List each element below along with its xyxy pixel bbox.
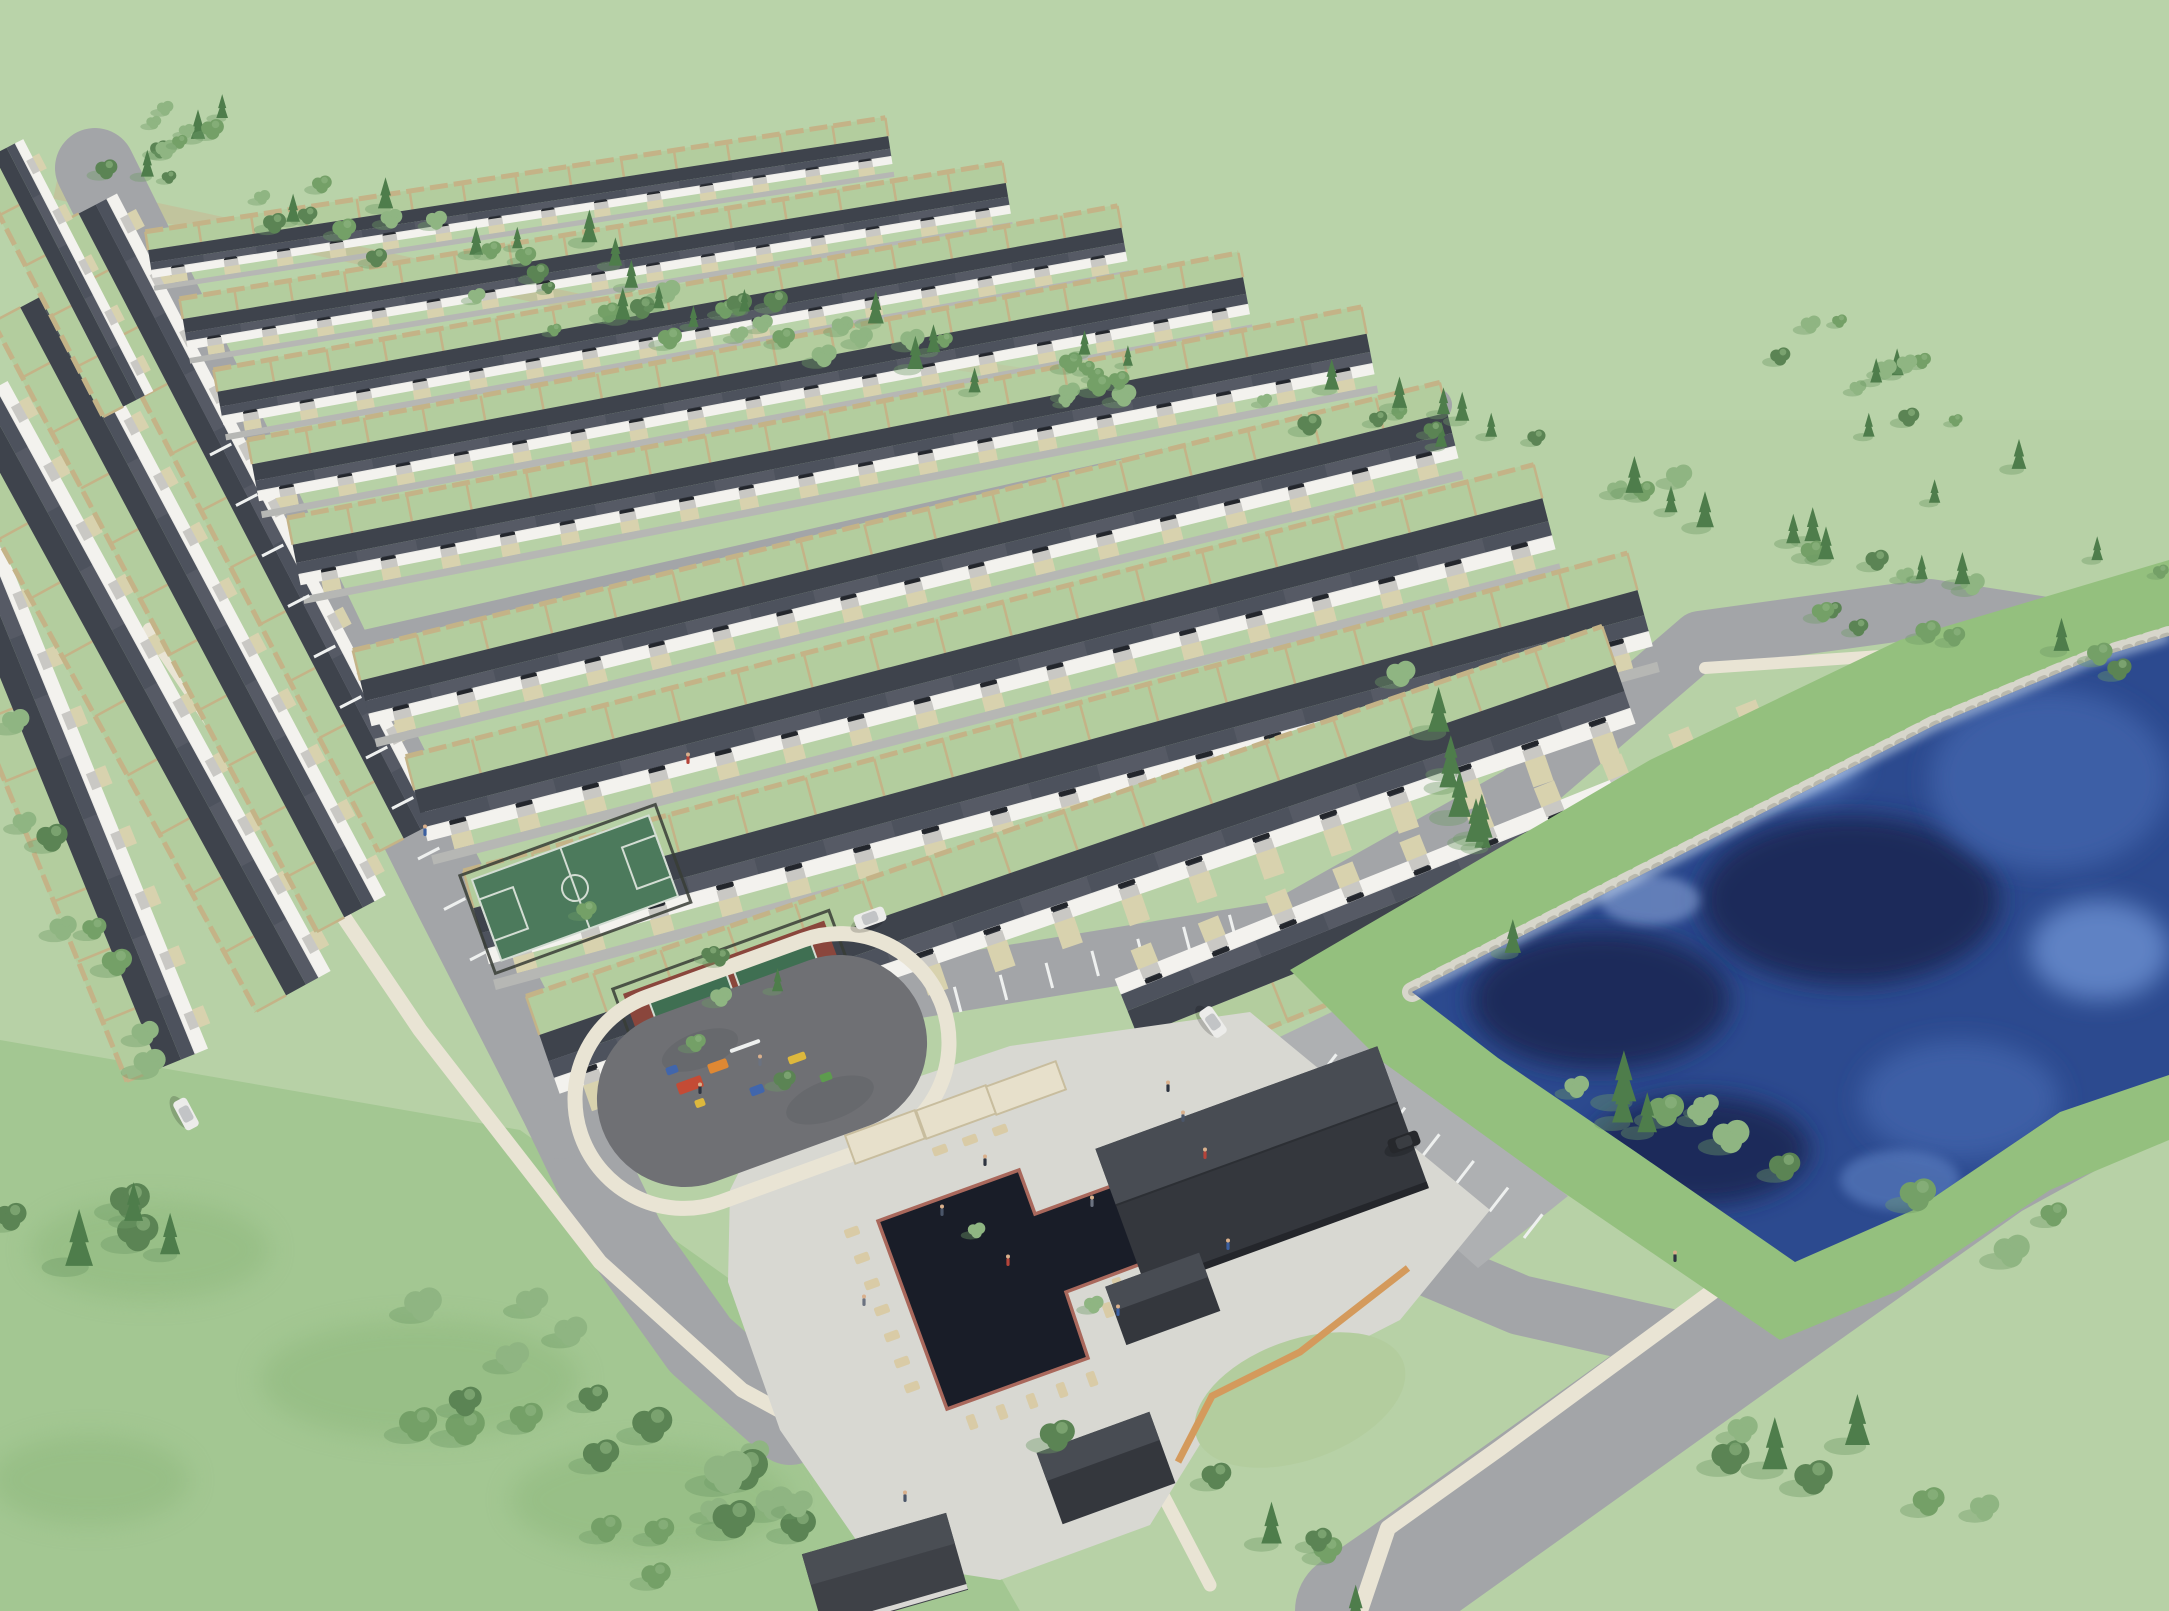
person: [1116, 1305, 1120, 1317]
person: [903, 1491, 907, 1503]
person: [698, 1083, 702, 1095]
aerial-rendering: [0, 0, 2169, 1611]
person: [686, 753, 690, 765]
person: [1006, 1255, 1010, 1267]
person: [423, 825, 427, 837]
person: [1226, 1239, 1230, 1251]
person: [1181, 1111, 1185, 1123]
person: [1166, 1081, 1170, 1093]
person: [862, 1295, 866, 1307]
person: [1090, 1196, 1094, 1208]
person: [983, 1155, 987, 1167]
person: [1673, 1251, 1677, 1263]
person: [758, 1055, 762, 1067]
person: [1203, 1148, 1207, 1160]
scene-canvas: [0, 0, 2169, 1611]
person: [940, 1205, 944, 1217]
